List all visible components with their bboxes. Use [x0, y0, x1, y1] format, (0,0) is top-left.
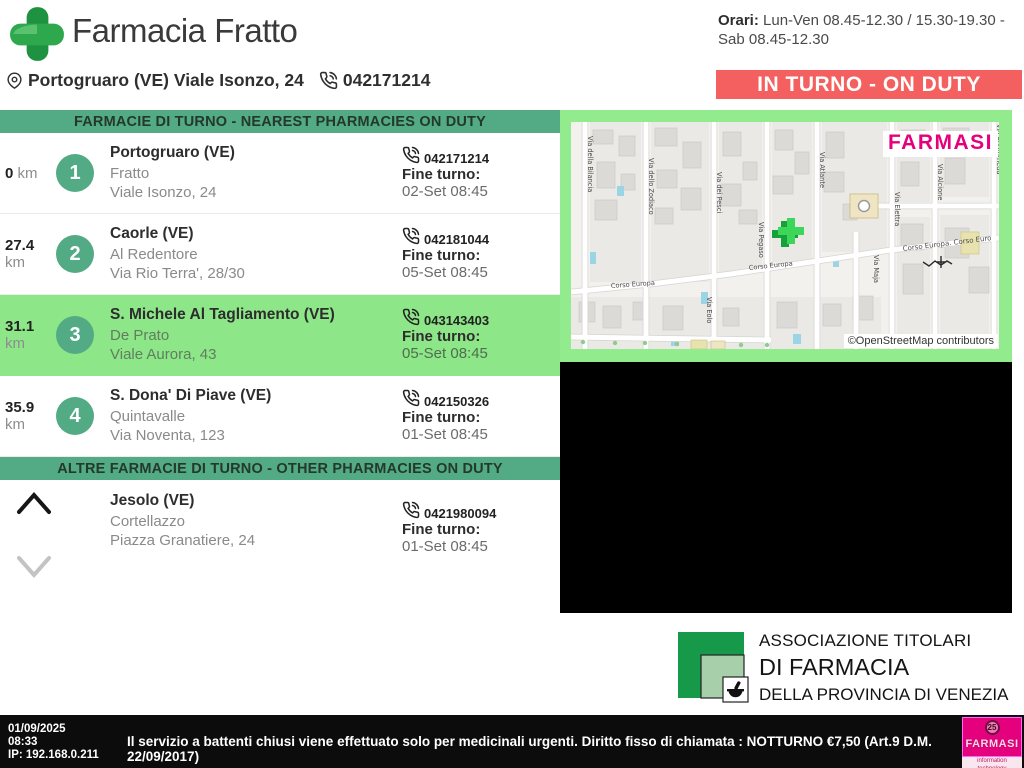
- association-line3: DELLA PROVINCIA DI VENEZIA: [759, 682, 1008, 707]
- pharmacy-phone: 043143403: [424, 313, 489, 328]
- svg-text:Via Pegaso: Via Pegaso: [757, 222, 765, 258]
- pharmacy-city: S. Dona' Di Piave (VE): [110, 387, 402, 405]
- pharmacy-name: Al Redentore: [110, 245, 402, 264]
- association-logo-block: ASSOCIAZIONE TITOLARI DI FARMACIA DELLA …: [678, 629, 1008, 709]
- pharmacy-city: Jesolo (VE): [110, 492, 402, 510]
- pharmacy-city: Portogruaro (VE): [110, 144, 402, 162]
- fine-turno-label: Fine turno:: [402, 328, 560, 345]
- video-panel: [560, 362, 1012, 613]
- association-line2: DI FARMACIA: [759, 653, 1008, 682]
- footer-bar: 01/09/2025 08:33 IP: 192.168.0.211 Il se…: [0, 715, 1024, 768]
- rank-badge: 3: [56, 316, 94, 354]
- distance-value: 31.1 km: [0, 318, 56, 352]
- fine-turno-label: Fine turno:: [402, 247, 560, 264]
- pharmacy-phone: 0421980094: [424, 506, 496, 521]
- farmasi-25-badge: 25: [985, 720, 1000, 735]
- pharmacy-phone: 042171214: [343, 70, 431, 91]
- svg-text:Via della Bilancia: Via della Bilancia: [586, 136, 594, 192]
- pharmacy-list-row: 31.1 km 3 S. Michele Al Tagliamento (VE)…: [0, 295, 560, 376]
- scroll-up-icon[interactable]: [15, 490, 53, 516]
- other-pharmacies-list: Jesolo (VE) Cortellazzo Piazza Granatier…: [0, 480, 560, 616]
- farmasi-subtitle: information technology: [962, 757, 1022, 768]
- footer-date: 01/09/2025: [8, 723, 99, 736]
- phone-icon: [402, 389, 420, 407]
- phone-icon: [319, 71, 338, 90]
- duty-pharmacies-panel: FARMACIE DI TURNO - NEAREST PHARMACIES O…: [0, 110, 560, 616]
- fine-turno-date: 01-Set 08:45: [402, 426, 560, 443]
- opening-hours: Orari: Lun-Ven 08.45-12.30 / 15.30-19.30…: [718, 11, 1020, 49]
- svg-text:Via dei Pesci: Via dei Pesci: [715, 172, 723, 213]
- pharmacy-phone: 042150326: [424, 394, 489, 409]
- map-container: Via della Bilancia Via dello Zodiaco Via…: [560, 110, 1012, 362]
- distance-value: 35.9 km: [0, 399, 56, 433]
- pharmacy-name: Quintavalle: [110, 407, 402, 426]
- phone-icon: [402, 308, 420, 326]
- svg-text:Via dello Zodiaco: Via dello Zodiaco: [647, 158, 655, 215]
- svg-text:Via Eolo: Via Eolo: [705, 297, 713, 323]
- farmasi-footer-logo: 25 FARMASI information technology: [962, 717, 1022, 768]
- phone-icon: [402, 501, 420, 519]
- pharmacy-name: De Prato: [110, 326, 402, 345]
- farmasi-wordmark: FARMASI: [966, 738, 1019, 750]
- rank-badge: 2: [56, 235, 94, 273]
- fine-turno-label: Fine turno:: [402, 166, 560, 183]
- scroll-down-icon[interactable]: [15, 554, 53, 580]
- opening-hours-label: Orari:: [718, 12, 759, 29]
- osm-attribution: ©OpenStreetMap contributors: [844, 334, 998, 348]
- fine-turno-date: 05-Set 08:45: [402, 345, 560, 362]
- pharmacy-address: Portogruaro (VE) Viale Isonzo, 24: [28, 70, 304, 91]
- rank-badge: 4: [56, 397, 94, 435]
- fine-turno-date: 01-Set 08:45: [402, 538, 560, 555]
- pharmacy-city: Caorle (VE): [110, 225, 402, 243]
- footer-message: Il servizio a battenti chiusi viene effe…: [127, 734, 937, 764]
- svg-text:Via Elettra: Via Elettra: [893, 192, 901, 226]
- map-roundabout: [850, 194, 878, 218]
- distance-value: 27.4 km: [0, 237, 56, 271]
- pharmacy-name: Fratto: [110, 164, 402, 183]
- page-title: Farmacia Fratto: [72, 12, 297, 50]
- svg-text:Via Maja: Via Maja: [872, 255, 880, 283]
- on-duty-banner: IN TURNO - ON DUTY: [716, 70, 1022, 99]
- pharmacy-name: Cortellazzo: [110, 512, 402, 531]
- fine-turno-date: 05-Set 08:45: [402, 264, 560, 281]
- svg-text:Via Alcione: Via Alcione: [936, 164, 944, 200]
- pharmacy-list-row: 35.9 km 4 S. Dona' Di Piave (VE) Quintav…: [0, 376, 560, 457]
- map-pin-icon: [6, 71, 23, 91]
- fine-turno-label: Fine turno:: [402, 409, 560, 426]
- pharmacy-street: Viale Isonzo, 24: [110, 183, 402, 202]
- distance-value: 0 km: [0, 165, 56, 182]
- nearest-pharmacies-list: 0 km 1 Portogruaro (VE) Fratto Viale Iso…: [0, 133, 560, 457]
- rank-badge: 1: [56, 154, 94, 192]
- pharmacy-street: Viale Aurora, 43: [110, 345, 402, 364]
- phone-icon: [402, 227, 420, 245]
- nearest-pharmacies-header: FARMACIE DI TURNO - NEAREST PHARMACIES O…: [0, 110, 560, 133]
- footer-time: 08:33: [8, 736, 99, 749]
- footer-ip: IP: 192.168.0.211: [8, 749, 99, 762]
- association-logo-icon: [678, 629, 750, 709]
- phone-icon: [402, 146, 420, 164]
- fine-turno-date: 02-Set 08:45: [402, 183, 560, 200]
- pharmacy-duty-kiosk: Farmacia Fratto Orari: Lun-Ven 08.45-12.…: [0, 0, 1024, 768]
- farmasi-map-brand: FARMASI: [883, 131, 998, 157]
- pharmacy-city: S. Michele Al Tagliamento (VE): [110, 306, 402, 324]
- pharmacy-street: Via Rio Terra', 28/30: [110, 264, 402, 283]
- pharmacy-list-row: Jesolo (VE) Cortellazzo Piazza Granatier…: [0, 480, 560, 555]
- pharmacy-phone: 042171214: [424, 151, 489, 166]
- pharmacy-street: Piazza Granatiere, 24: [110, 531, 402, 550]
- fine-turno-label: Fine turno:: [402, 521, 560, 538]
- pharmacy-list-row: 27.4 km 2 Caorle (VE) Al Redentore Via R…: [0, 214, 560, 295]
- svg-text:Via Atlante: Via Atlante: [818, 152, 826, 188]
- pharmacy-cross-logo-icon: [8, 5, 66, 63]
- pharmacy-phone: 042181044: [424, 232, 489, 247]
- association-line1: ASSOCIAZIONE TITOLARI: [759, 629, 1008, 653]
- other-pharmacies-header: ALTRE FARMACIE DI TURNO - OTHER PHARMACI…: [0, 457, 560, 480]
- pharmacy-street: Via Noventa, 123: [110, 426, 402, 445]
- pharmacy-list-row: 0 km 1 Portogruaro (VE) Fratto Viale Iso…: [0, 133, 560, 214]
- opening-hours-text: Lun-Ven 08.45-12.30 / 15.30-19.30 - Sab …: [718, 12, 1005, 48]
- map-viewport[interactable]: Via della Bilancia Via dello Zodiaco Via…: [571, 122, 999, 349]
- pharmacy-address-row: Portogruaro (VE) Viale Isonzo, 24 042171…: [6, 70, 430, 91]
